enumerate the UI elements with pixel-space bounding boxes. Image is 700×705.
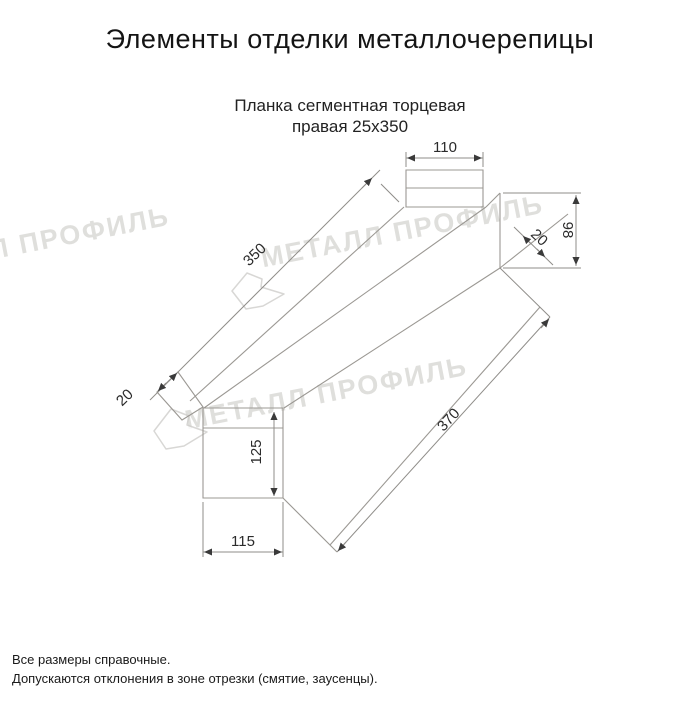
footer-notes: Все размеры справочные. Допускаются откл…: [12, 650, 378, 688]
footer-note-1: Все размеры справочные.: [12, 650, 378, 669]
dim-label-20-left: 20: [113, 386, 137, 410]
watermark-text-1: МЕТАЛЛ ПРОФИЛЬ: [258, 189, 546, 273]
watermark-logo-icon: [232, 273, 284, 309]
watermark-layer: МЕТАЛЛ ПРОФИЛЬ МЕТАЛЛ ПРОФИЛЬ МЕТАЛЛ ПРО…: [0, 189, 546, 449]
dim-label-110: 110: [433, 139, 457, 156]
dim-label-370: 370: [434, 405, 464, 435]
technical-drawing: МЕТАЛЛ ПРОФИЛЬ МЕТАЛЛ ПРОФИЛЬ МЕТАЛЛ ПРО…: [0, 0, 700, 700]
footer-note-2: Допускаются отклонения в зоне отрезки (с…: [12, 669, 378, 688]
dim-label-98: 98: [559, 222, 576, 239]
dim-label-125: 125: [248, 439, 265, 464]
dim-label-115: 115: [231, 533, 255, 550]
dim-label-20-right: 20: [527, 226, 551, 250]
catalog-page: { "header": { "title": "Элементы отделки…: [0, 0, 700, 700]
watermark-text-partial: МЕТАЛЛ ПРОФИЛЬ: [0, 201, 172, 285]
